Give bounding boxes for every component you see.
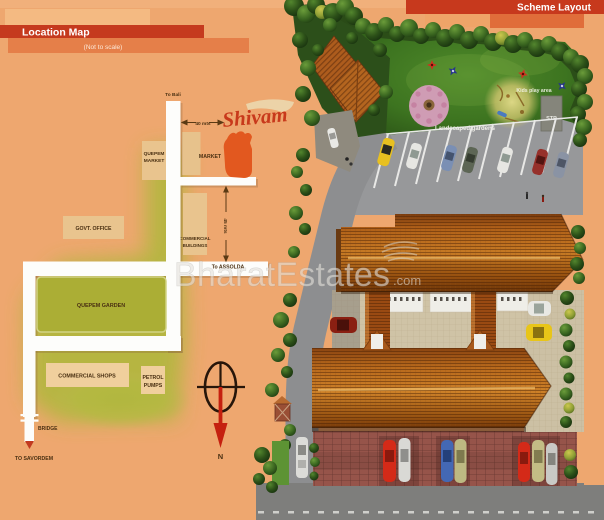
- svg-text:TO SAVORDEM: TO SAVORDEM: [15, 456, 53, 462]
- svg-text:GOVT. OFFICE: GOVT. OFFICE: [75, 226, 112, 232]
- svg-text:COMMERCIAL SHOPS: COMMERCIAL SHOPS: [58, 374, 116, 380]
- svg-text:QUEPEM GARDEN: QUEPEM GARDEN: [77, 303, 125, 309]
- svg-text:PUMPS: PUMPS: [144, 383, 163, 389]
- svg-text:40 mts: 40 mts: [195, 121, 211, 127]
- svg-text:.com: .com: [393, 273, 421, 288]
- svg-text:Kids play area: Kids play area: [516, 88, 551, 94]
- svg-text:BRIDGE: BRIDGE: [38, 426, 58, 432]
- svg-text:BharatEstates: BharatEstates: [174, 256, 390, 294]
- svg-text:45 mts: 45 mts: [222, 218, 228, 234]
- svg-text:MARKET: MARKET: [199, 154, 222, 160]
- svg-text:N: N: [218, 452, 223, 461]
- svg-text:COMMERCIAL: COMMERCIAL: [180, 236, 211, 241]
- svg-text:MARKET: MARKET: [144, 158, 165, 164]
- svg-text:To Bali: To Bali: [165, 92, 181, 98]
- svg-text:Scheme Layout: Scheme Layout: [517, 3, 592, 14]
- svg-text:BUILDINGS: BUILDINGS: [183, 243, 208, 248]
- svg-text:QUEPEM: QUEPEM: [144, 151, 165, 157]
- svg-text:(Not to scale): (Not to scale): [84, 44, 123, 51]
- svg-text:Location Map: Location Map: [22, 27, 90, 39]
- svg-text:PETROL: PETROL: [142, 375, 164, 381]
